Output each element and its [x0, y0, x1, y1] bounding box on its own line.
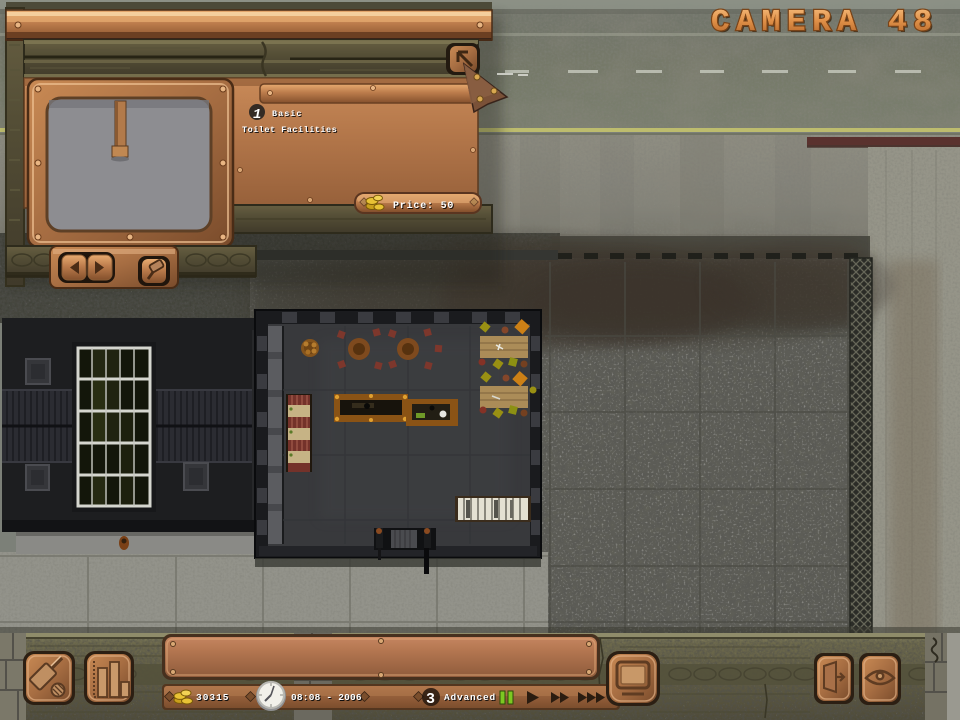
- svg-text:CAMERA 48: CAMERA 48: [711, 5, 933, 40]
- svg-text:08:08 - 2006: 08:08 - 2006: [291, 692, 362, 703]
- svg-text:30315: 30315: [196, 692, 230, 703]
- svg-text:Advanced: Advanced: [444, 692, 496, 703]
- svg-text:1: 1: [253, 107, 261, 123]
- svg-text:Toilet Facilities: Toilet Facilities: [242, 125, 337, 135]
- svg-text:Basic: Basic: [272, 109, 303, 119]
- svg-text:Price: 50: Price: 50: [393, 200, 454, 212]
- svg-text:3: 3: [426, 691, 435, 708]
